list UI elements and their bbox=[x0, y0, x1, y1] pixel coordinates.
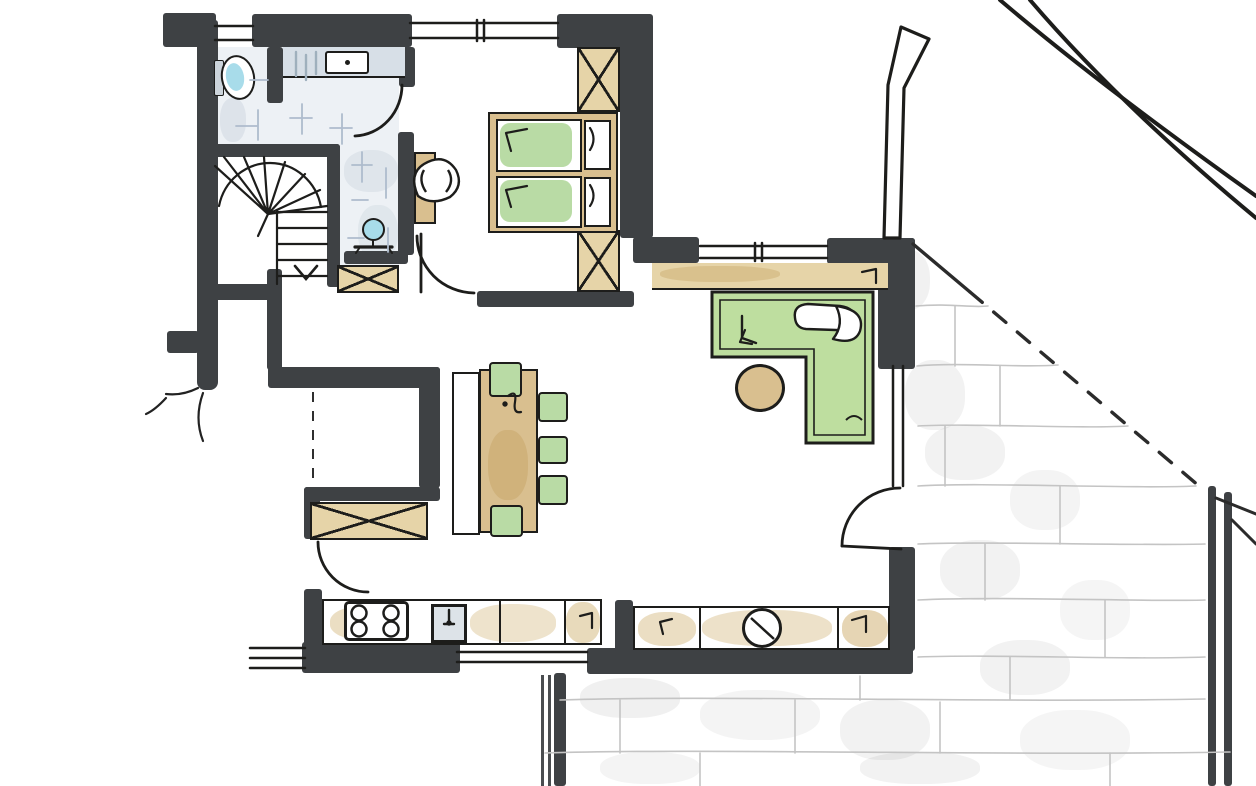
bed-pillow bbox=[584, 177, 611, 227]
stone-wash bbox=[600, 752, 700, 784]
wall-bedroom-bottom bbox=[477, 291, 634, 307]
window-study-side bbox=[893, 366, 903, 486]
stone-wash bbox=[940, 540, 1020, 600]
garden-squiggles bbox=[146, 388, 203, 441]
wardrobe-top bbox=[577, 47, 620, 112]
wall-left-stub bbox=[167, 331, 199, 353]
window-study bbox=[700, 243, 827, 261]
wall-bath-top bbox=[252, 14, 412, 47]
stone-wash bbox=[925, 425, 1005, 480]
counter-wash bbox=[566, 602, 600, 643]
dining-chair bbox=[490, 505, 523, 537]
window-kitchen-slider bbox=[457, 652, 587, 662]
dining-bench bbox=[452, 372, 480, 535]
terrace-post-line bbox=[1224, 492, 1232, 786]
terrace-post bbox=[1208, 486, 1216, 786]
door-arc-bedroom bbox=[417, 236, 474, 293]
floor-plan-canvas bbox=[0, 0, 1256, 786]
dining-chair bbox=[489, 362, 522, 397]
stone-wash bbox=[700, 690, 820, 740]
terrace-screen-line bbox=[541, 675, 544, 786]
stairs-arrow bbox=[295, 266, 317, 279]
dining-chair bbox=[538, 475, 568, 505]
wall-turn-east bbox=[633, 237, 699, 263]
window-bedroom-top bbox=[410, 20, 558, 41]
tile-wash bbox=[344, 150, 398, 192]
wall-kitchen-left-stub bbox=[304, 589, 322, 645]
cooktop bbox=[344, 601, 409, 641]
pouf bbox=[735, 364, 785, 412]
wall-toilet-stub bbox=[267, 47, 283, 103]
stone-wash bbox=[840, 700, 930, 760]
stone-wash bbox=[905, 360, 965, 430]
stone-wash bbox=[860, 752, 980, 784]
corridor-shaft bbox=[337, 265, 399, 293]
roof-eave-lines bbox=[1000, 0, 1256, 218]
wardrobe-bottom bbox=[577, 230, 620, 292]
bed-cover bbox=[500, 123, 572, 167]
wall-stairhall-divider bbox=[267, 269, 282, 370]
terrace-screen-line bbox=[548, 675, 551, 786]
wall-stair-top bbox=[209, 144, 340, 157]
office-chair bbox=[795, 304, 861, 341]
wall-kitchen-mid-pillar bbox=[615, 600, 633, 652]
sideboard-wash bbox=[660, 266, 780, 282]
bed-pillow bbox=[584, 120, 611, 170]
hall-closet bbox=[310, 502, 428, 540]
window-kitchen-left bbox=[250, 648, 305, 668]
wall-hall-right bbox=[419, 367, 440, 488]
round-basin bbox=[742, 608, 782, 648]
exterior-wall-outline bbox=[884, 27, 929, 238]
kitchen-sink bbox=[431, 604, 467, 643]
terrace-screen-bar bbox=[554, 673, 566, 786]
stone-wash bbox=[1020, 710, 1130, 770]
stone-wash bbox=[580, 678, 680, 718]
wall-bedroom-right bbox=[620, 16, 653, 238]
stairs bbox=[215, 157, 327, 284]
stone-wash bbox=[980, 640, 1070, 695]
wall-hall-top bbox=[268, 367, 440, 388]
window-bath-left bbox=[215, 26, 253, 40]
wall-office-right bbox=[878, 238, 915, 369]
study-desk bbox=[712, 292, 873, 612]
wall-kitchen-south-right bbox=[587, 648, 913, 674]
wall-corridor-divider bbox=[398, 132, 414, 255]
wall-hall-bottom bbox=[304, 487, 440, 501]
door-arc-hall bbox=[318, 542, 368, 592]
counter-wash bbox=[470, 604, 556, 642]
wall-terrace-door-pillar bbox=[889, 547, 915, 651]
tile-wash bbox=[220, 98, 246, 142]
wall-kitchen-south-left bbox=[302, 642, 460, 673]
stone-wash bbox=[1010, 470, 1080, 530]
dining-chair bbox=[538, 436, 568, 464]
vanity-basin-drain bbox=[345, 60, 350, 65]
dining-chair bbox=[538, 392, 568, 422]
counter-wash bbox=[638, 612, 696, 646]
door-arc-terrace bbox=[842, 488, 900, 546]
wall-corridor-bottom bbox=[344, 251, 408, 264]
hand-basin bbox=[362, 218, 385, 241]
bedroom-desk bbox=[414, 152, 436, 224]
table-wash bbox=[488, 430, 528, 500]
counter-wash bbox=[842, 610, 888, 647]
bed-cover bbox=[500, 180, 572, 222]
stone-wash bbox=[1060, 580, 1130, 640]
